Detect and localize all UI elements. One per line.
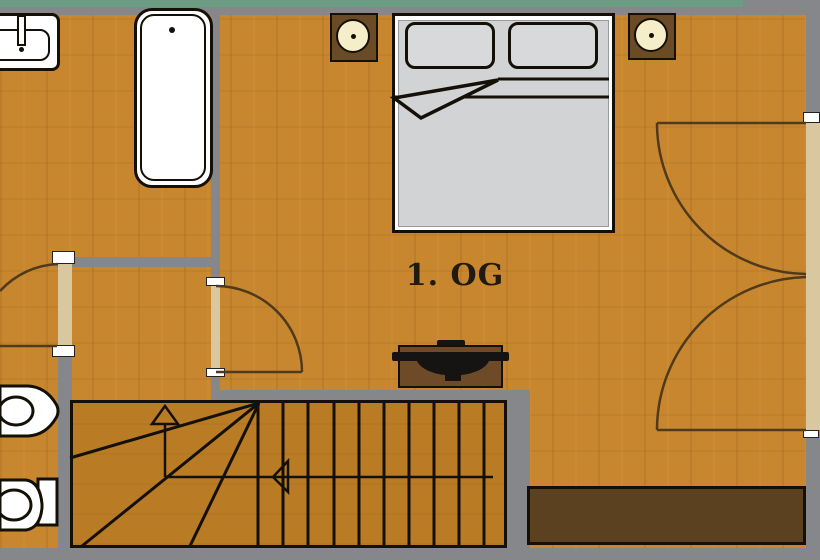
lamp-dot: [351, 34, 356, 39]
stairs: [70, 400, 507, 548]
wall-right-upper: [806, 7, 820, 112]
floor-label: 1. OG: [375, 258, 535, 294]
bedside-lamp-left-icon: [336, 19, 370, 53]
wall-bottom: [0, 548, 820, 560]
door-stop-wc-bottom: [52, 345, 75, 357]
wall-right-lower: [806, 438, 820, 550]
wall-bathroom-south: [56, 257, 211, 267]
wardrobe: [527, 486, 806, 545]
outside-strip: [0, 0, 820, 7]
bedside-lamp-right-icon: [634, 18, 668, 52]
sink-drain: [19, 47, 24, 52]
bathtub-inner: [140, 14, 206, 181]
floor-plan: 1. OG: [0, 0, 820, 560]
pillow-left: [405, 22, 495, 69]
french-door-opening: [806, 123, 820, 430]
bedroom-door-arc: [216, 286, 302, 372]
bathtub-drain: [169, 27, 175, 33]
sink-faucet-icon: [17, 15, 26, 46]
toilet-icon: [0, 479, 57, 530]
wc-door-arc: [0, 264, 58, 346]
wc-door-opening: [58, 264, 72, 345]
lamp-dot: [649, 33, 654, 38]
pillow-right: [508, 22, 598, 69]
door-stop-right-bottom: [803, 430, 819, 438]
bedroom-door-opening: [211, 286, 220, 368]
door-stop-right-top: [803, 112, 820, 123]
bidet-icon: [0, 386, 58, 436]
door-stop-wc-top: [52, 251, 75, 264]
stove-band: [392, 352, 509, 361]
door-stop-bedroom-bottom: [206, 368, 225, 377]
door-stop-bedroom-top: [206, 277, 225, 286]
french-double-door-arcs: [657, 123, 806, 430]
